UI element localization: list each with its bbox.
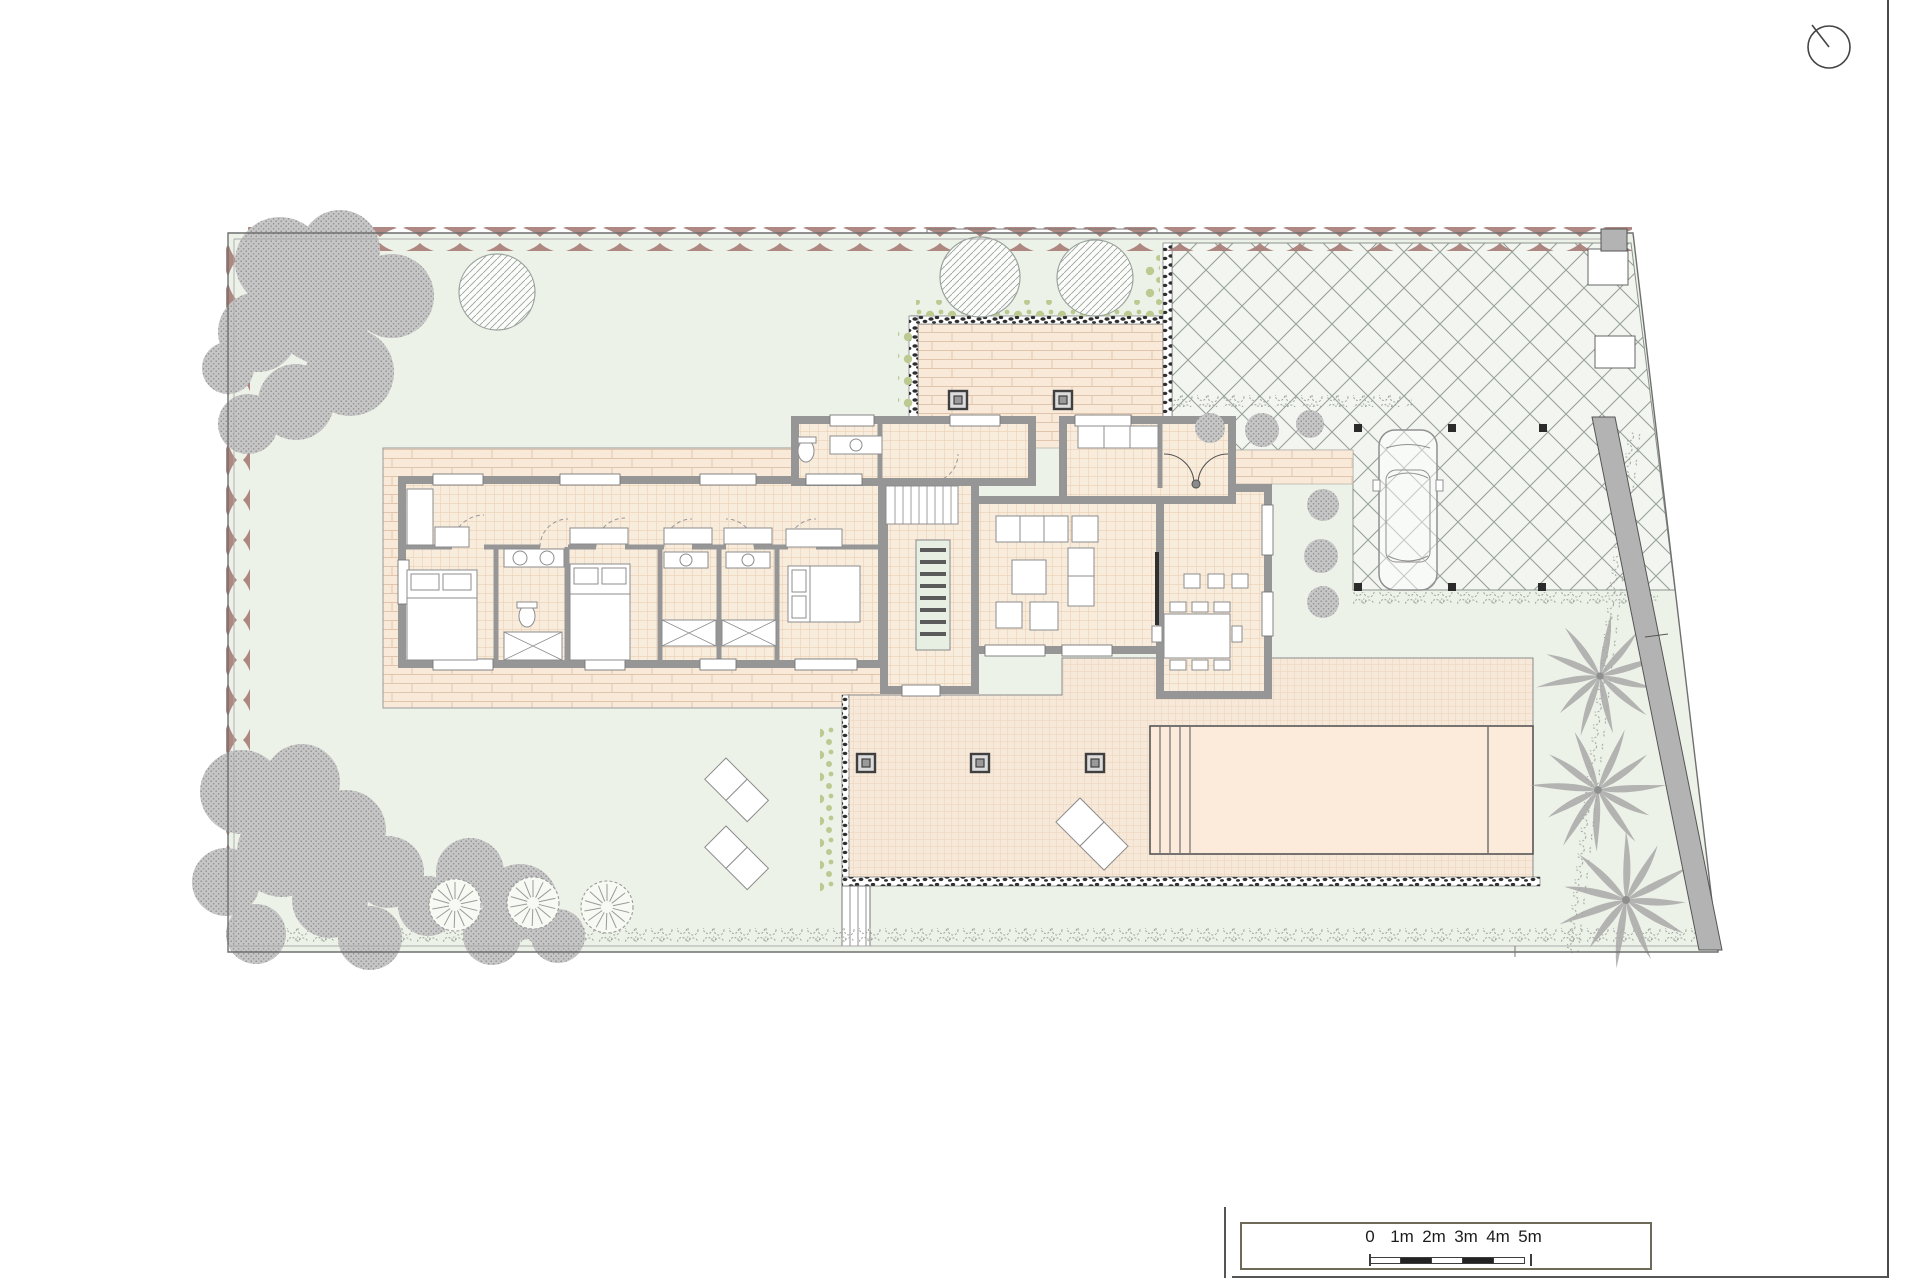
- car: [1373, 430, 1443, 590]
- closet: [664, 528, 712, 544]
- scale-label-1m: 1m: [1386, 1227, 1418, 1247]
- scale-bar-segments: [1370, 1257, 1530, 1264]
- scale-label-2m: 2m: [1418, 1227, 1450, 1247]
- closet: [570, 528, 628, 544]
- wardrobe: [786, 529, 842, 547]
- wardrobe: [435, 527, 469, 547]
- scale-label-0: 0: [1354, 1227, 1386, 1247]
- sheet-border-bottom: [1232, 1276, 1888, 1278]
- chair: [996, 602, 1022, 628]
- terrace-light: [857, 754, 875, 772]
- scale-label-4m: 4m: [1482, 1227, 1514, 1247]
- scale-bar-tick-line: [1224, 1207, 1226, 1278]
- sheet-border-right: [1887, 0, 1889, 1278]
- scale-bar: 0 1m 2m 3m 4m 5m: [1240, 1222, 1652, 1270]
- courtyard-light: [949, 391, 967, 409]
- scale-label-5m: 5m: [1514, 1227, 1546, 1247]
- armchair: [1072, 516, 1098, 542]
- gate-gap: [1595, 336, 1635, 368]
- north-indicator-icon: [1808, 25, 1850, 68]
- closet: [724, 528, 772, 544]
- site-plan-drawing: [0, 0, 1920, 1280]
- gate-pier: [1601, 229, 1627, 251]
- sofa: [1078, 426, 1158, 448]
- dining-table: [1164, 614, 1230, 658]
- gate-gap: [1588, 249, 1628, 285]
- radial-bush: [507, 877, 559, 929]
- chair: [1030, 602, 1058, 630]
- scale-label-3m: 3m: [1450, 1227, 1482, 1247]
- radial-bush: [429, 879, 481, 931]
- wardrobe: [407, 489, 433, 545]
- floor-plan-sheet: 0 1m 2m 3m 4m 5m: [0, 0, 1920, 1280]
- sofa: [996, 516, 1068, 542]
- radial-bush: [581, 881, 633, 933]
- coffee-table: [1012, 560, 1046, 594]
- courtyard-light: [1054, 391, 1072, 409]
- chaise: [1068, 548, 1094, 606]
- terrace-light: [971, 754, 989, 772]
- swimming-pool: [1150, 726, 1533, 854]
- terrace-light: [1086, 754, 1104, 772]
